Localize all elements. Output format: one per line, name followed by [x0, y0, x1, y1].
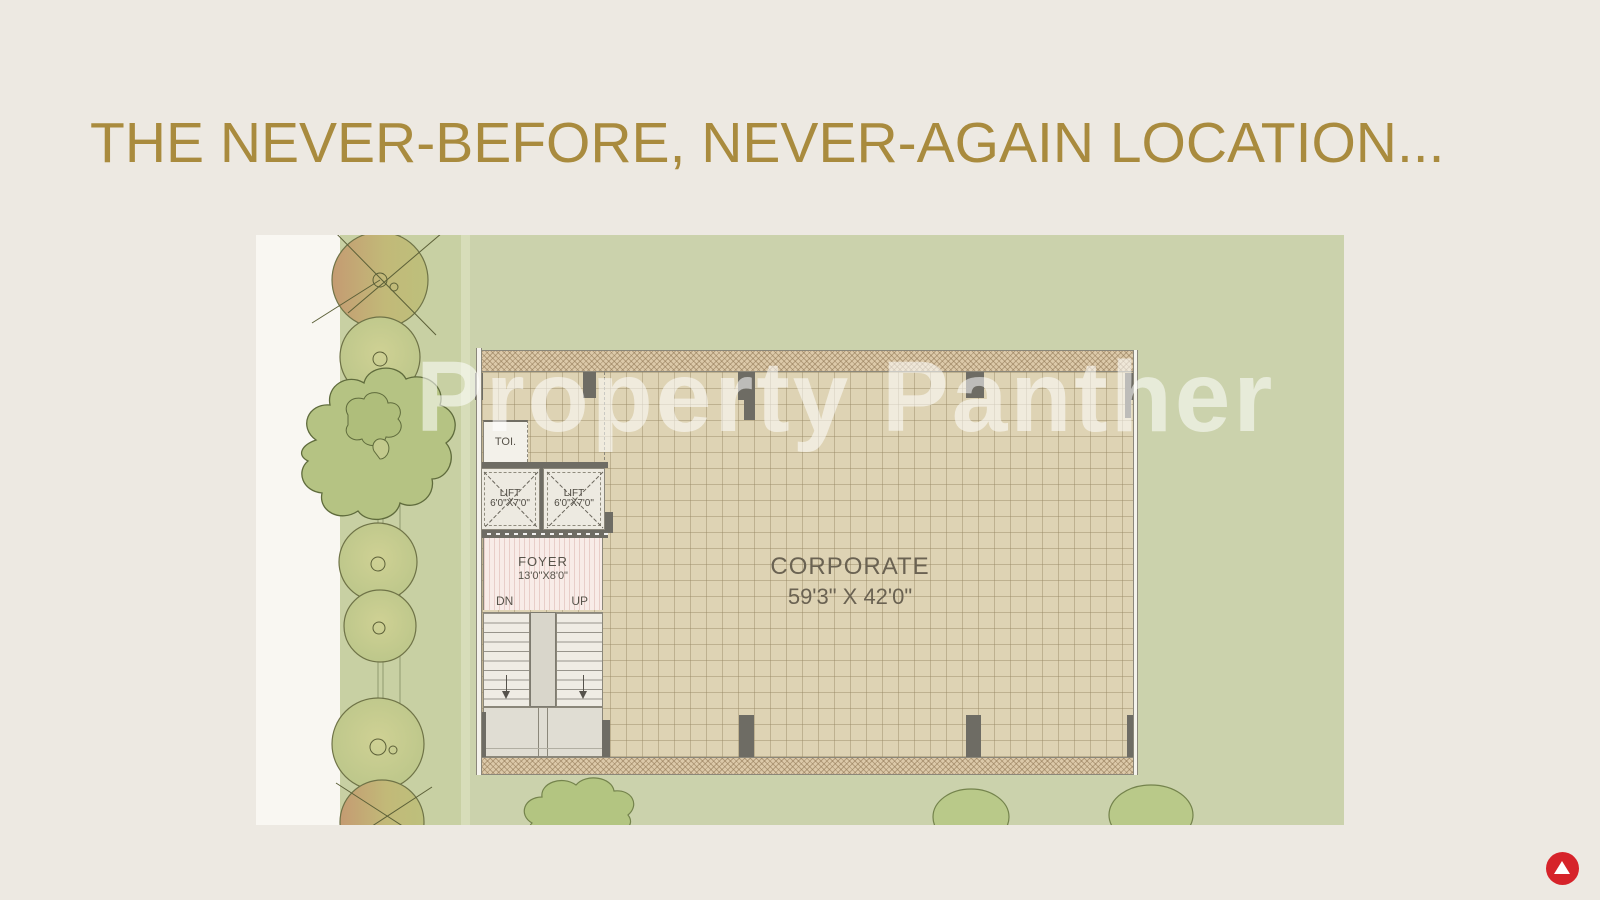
stair-core-wall	[530, 612, 556, 707]
lift-label: LIFT 6'0"X7'0"	[544, 489, 604, 509]
page-title: THE NEVER-BEFORE, NEVER-AGAIN LOCATION..…	[90, 114, 1444, 174]
corporate-name: CORPORATE	[700, 553, 1000, 581]
column	[739, 715, 754, 757]
triangle-icon	[1554, 861, 1570, 874]
foyer-label: FOYER	[484, 554, 602, 569]
column	[966, 715, 981, 757]
stairs-up-label: UP	[571, 594, 588, 608]
stair-landing	[483, 707, 603, 757]
stair-arrow-icon	[579, 691, 587, 699]
stair-arrow-icon	[583, 675, 584, 691]
stairs-down-label: DN	[496, 594, 513, 608]
lift-dims: 6'0"X7'0"	[481, 499, 539, 509]
floor-plan-image: TOI. LIFT 6'0"X7'0" LIFT 6'0"X7'0"	[256, 235, 1344, 825]
lift-label: LIFT 6'0"X7'0"	[481, 489, 539, 509]
watermark-text: Property Panther	[416, 347, 1275, 447]
column	[602, 720, 610, 757]
stair-arrow-icon	[506, 675, 507, 691]
trees-graphic	[256, 235, 476, 825]
wall-segment	[478, 530, 608, 538]
shrubs-graphic	[256, 775, 1344, 825]
lift-2: LIFT 6'0"X7'0"	[543, 468, 605, 530]
corporate-room-label: CORPORATE 59'3" X 42'0"	[700, 553, 1000, 610]
exterior-wall-bottom	[476, 757, 1138, 775]
brand-logo	[1546, 852, 1579, 885]
landing-line	[484, 748, 602, 749]
lift-dims: 6'0"X7'0"	[544, 499, 604, 509]
lift-1: LIFT 6'0"X7'0"	[480, 468, 540, 530]
stair-arrow-icon	[502, 691, 510, 699]
corporate-dims: 59'3" X 42'0"	[700, 584, 1000, 610]
foyer-dims: 13'0"X8'0"	[484, 570, 602, 582]
foyer-room: FOYER 13'0"X8'0" DN UP	[483, 538, 603, 610]
